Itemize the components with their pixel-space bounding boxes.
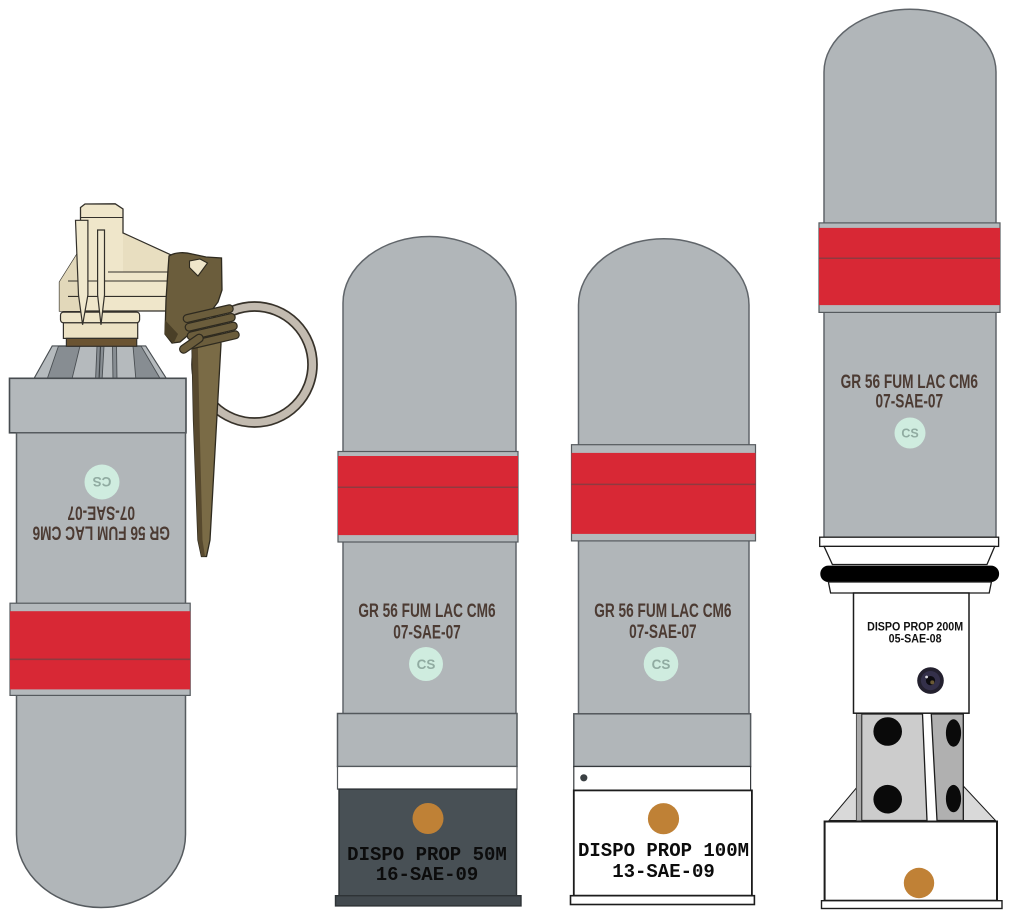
svg-text:13-SAE-09: 13-SAE-09 [612,861,715,883]
svg-text:CS: CS [652,657,671,672]
svg-text:07-SAE-07: 07-SAE-07 [67,502,135,524]
svg-text:07-SAE-07: 07-SAE-07 [393,621,461,643]
svg-text:DISPO PROP 100M: DISPO PROP 100M [578,840,749,862]
svg-text:05-SAE-08: 05-SAE-08 [889,633,942,645]
svg-text:CS: CS [901,427,918,441]
svg-text:CS: CS [417,657,436,672]
svg-text:07-SAE-07: 07-SAE-07 [876,390,944,412]
svg-text:GR 56 FUM LAC CM6: GR 56 FUM LAC CM6 [594,600,731,622]
svg-text:GR 56 FUM LAC CM6: GR 56 FUM LAC CM6 [358,600,495,622]
svg-text:GR 56 FUM LAC CM6: GR 56 FUM LAC CM6 [33,522,170,544]
svg-text:07-SAE-07: 07-SAE-07 [629,620,697,642]
svg-text:16-SAE-09: 16-SAE-09 [376,864,479,886]
svg-text:CS: CS [93,474,112,489]
svg-text:DISPO PROP 50M: DISPO PROP 50M [347,844,507,866]
svg-text:DISPO PROP 200M: DISPO PROP 200M [867,621,963,633]
